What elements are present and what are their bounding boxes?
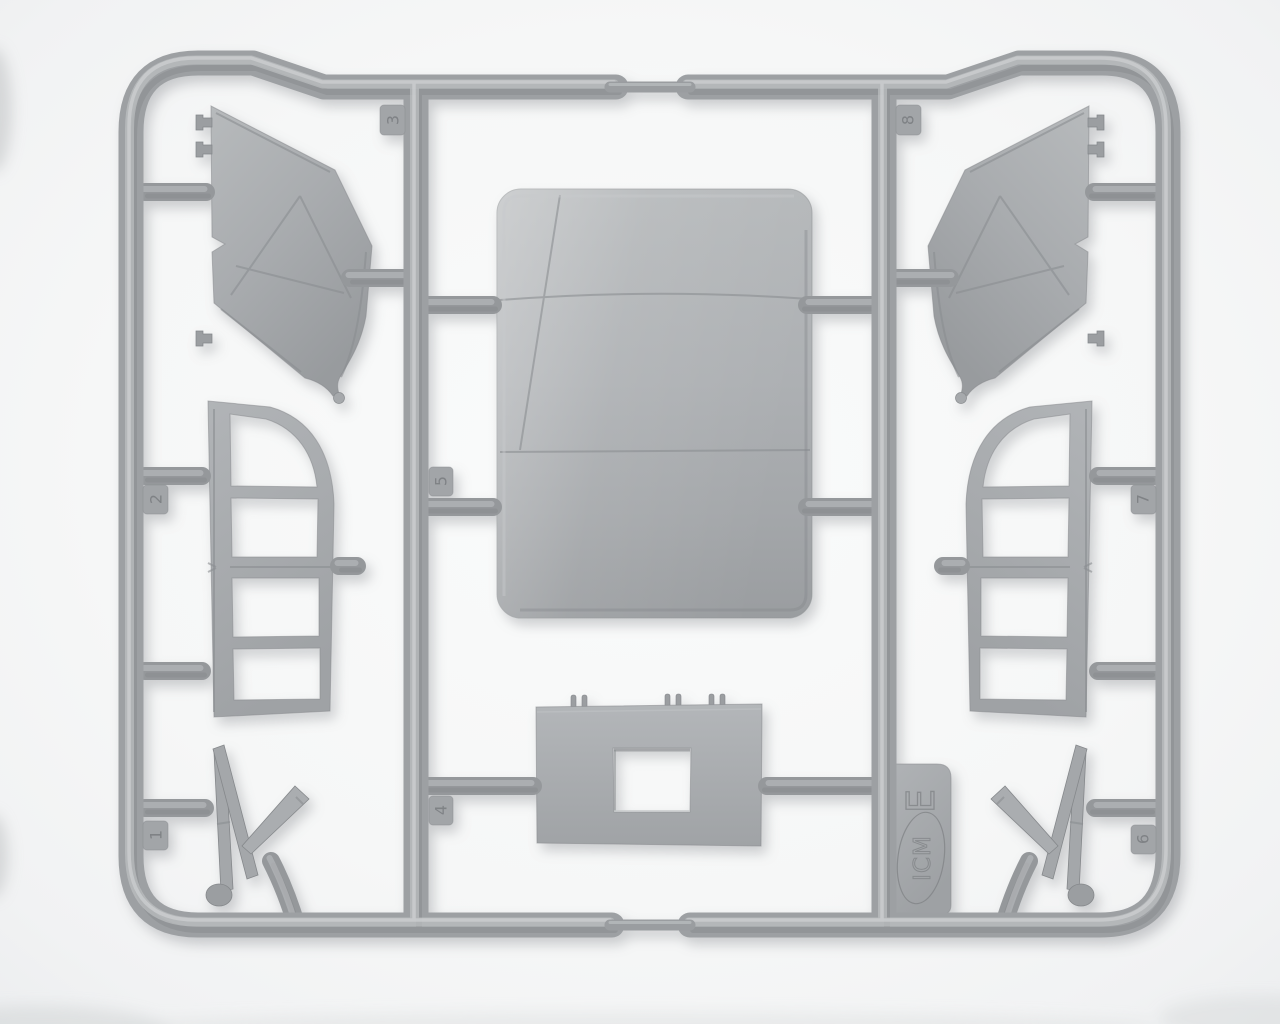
gate-number: 4 [432, 805, 451, 815]
sprue-letter-text: E [899, 789, 943, 813]
gate-number: 3 [384, 115, 403, 125]
brand-logo-text: ICM [910, 835, 936, 881]
gate-number: 8 [899, 115, 918, 125]
part-roof-panel [497, 189, 812, 618]
brand-plate: E ICM [892, 764, 951, 914]
sprue-photo: E ICM 1 2 [0, 0, 1280, 1024]
gate-number: 7 [1134, 494, 1153, 504]
gate-number: 6 [1134, 834, 1153, 844]
gate-number: 2 [147, 494, 166, 504]
gate-number: 1 [147, 830, 166, 840]
gate-number: 5 [432, 476, 451, 486]
